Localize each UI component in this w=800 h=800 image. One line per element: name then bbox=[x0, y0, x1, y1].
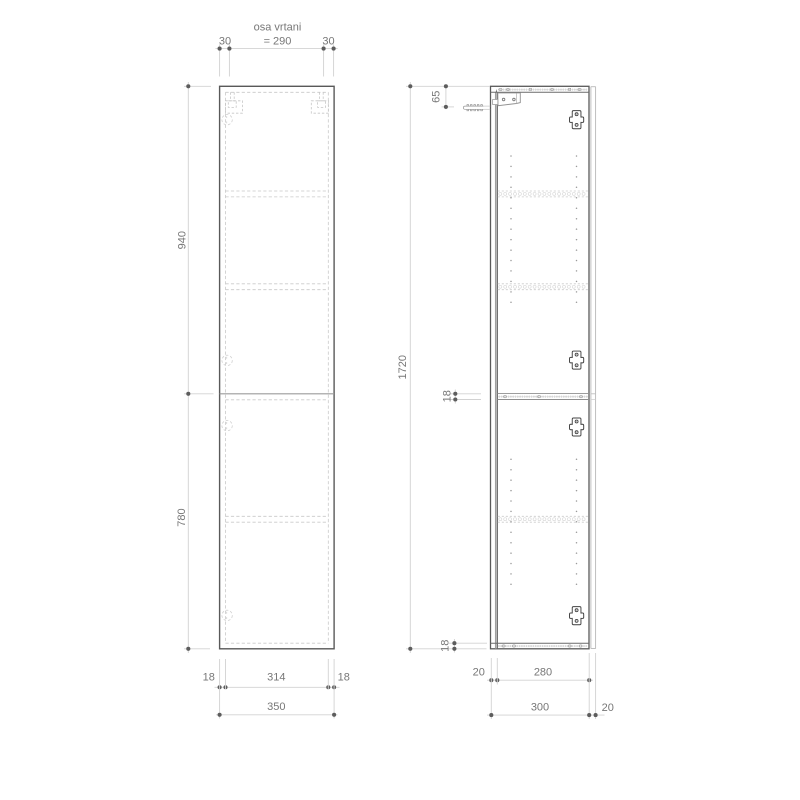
svg-text:18: 18 bbox=[338, 672, 350, 684]
svg-text:20: 20 bbox=[602, 702, 614, 714]
svg-text:30: 30 bbox=[219, 36, 231, 48]
svg-text:30: 30 bbox=[322, 36, 334, 48]
svg-text:osa vrtani: osa vrtani bbox=[254, 22, 302, 34]
svg-text:65: 65 bbox=[430, 91, 442, 103]
svg-text:18: 18 bbox=[439, 640, 451, 652]
svg-text:780: 780 bbox=[176, 508, 188, 526]
svg-text:940: 940 bbox=[176, 231, 188, 249]
svg-text:280: 280 bbox=[534, 667, 552, 679]
svg-text:350: 350 bbox=[267, 701, 285, 713]
svg-text:18: 18 bbox=[442, 390, 454, 402]
svg-text:1720: 1720 bbox=[397, 355, 409, 379]
svg-text:= 290: = 290 bbox=[264, 36, 292, 48]
svg-text:20: 20 bbox=[473, 667, 485, 679]
svg-text:300: 300 bbox=[531, 702, 549, 714]
svg-text:18: 18 bbox=[203, 672, 215, 684]
svg-text:314: 314 bbox=[267, 672, 285, 684]
